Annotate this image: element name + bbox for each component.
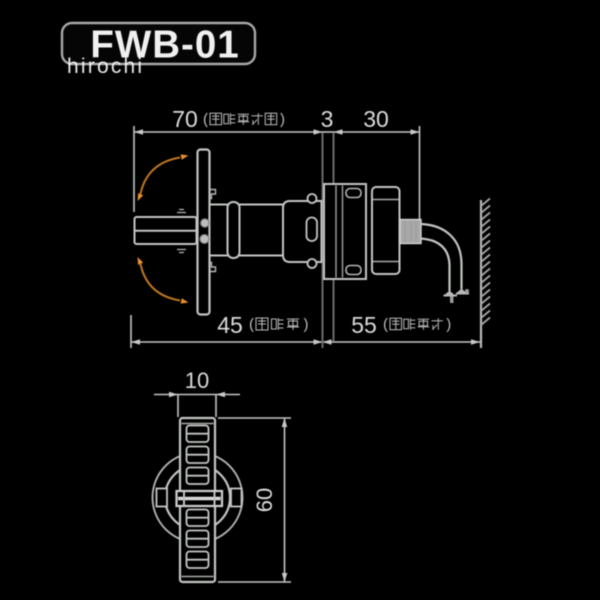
svg-text:3: 3	[321, 106, 334, 132]
svg-text:): )	[446, 316, 451, 333]
svg-text:hirochi: hirochi	[67, 55, 144, 78]
svg-text:): )	[304, 316, 309, 333]
svg-text:(: (	[203, 111, 208, 128]
svg-text:45: 45	[217, 312, 243, 338]
svg-text:): )	[280, 111, 285, 128]
svg-text:10: 10	[185, 368, 209, 393]
svg-text:(: (	[249, 316, 254, 333]
svg-text:60: 60	[252, 488, 277, 512]
svg-text:70: 70	[172, 106, 198, 132]
svg-text:(: (	[383, 316, 388, 333]
svg-text:30: 30	[363, 106, 389, 132]
svg-text:55: 55	[351, 312, 377, 338]
